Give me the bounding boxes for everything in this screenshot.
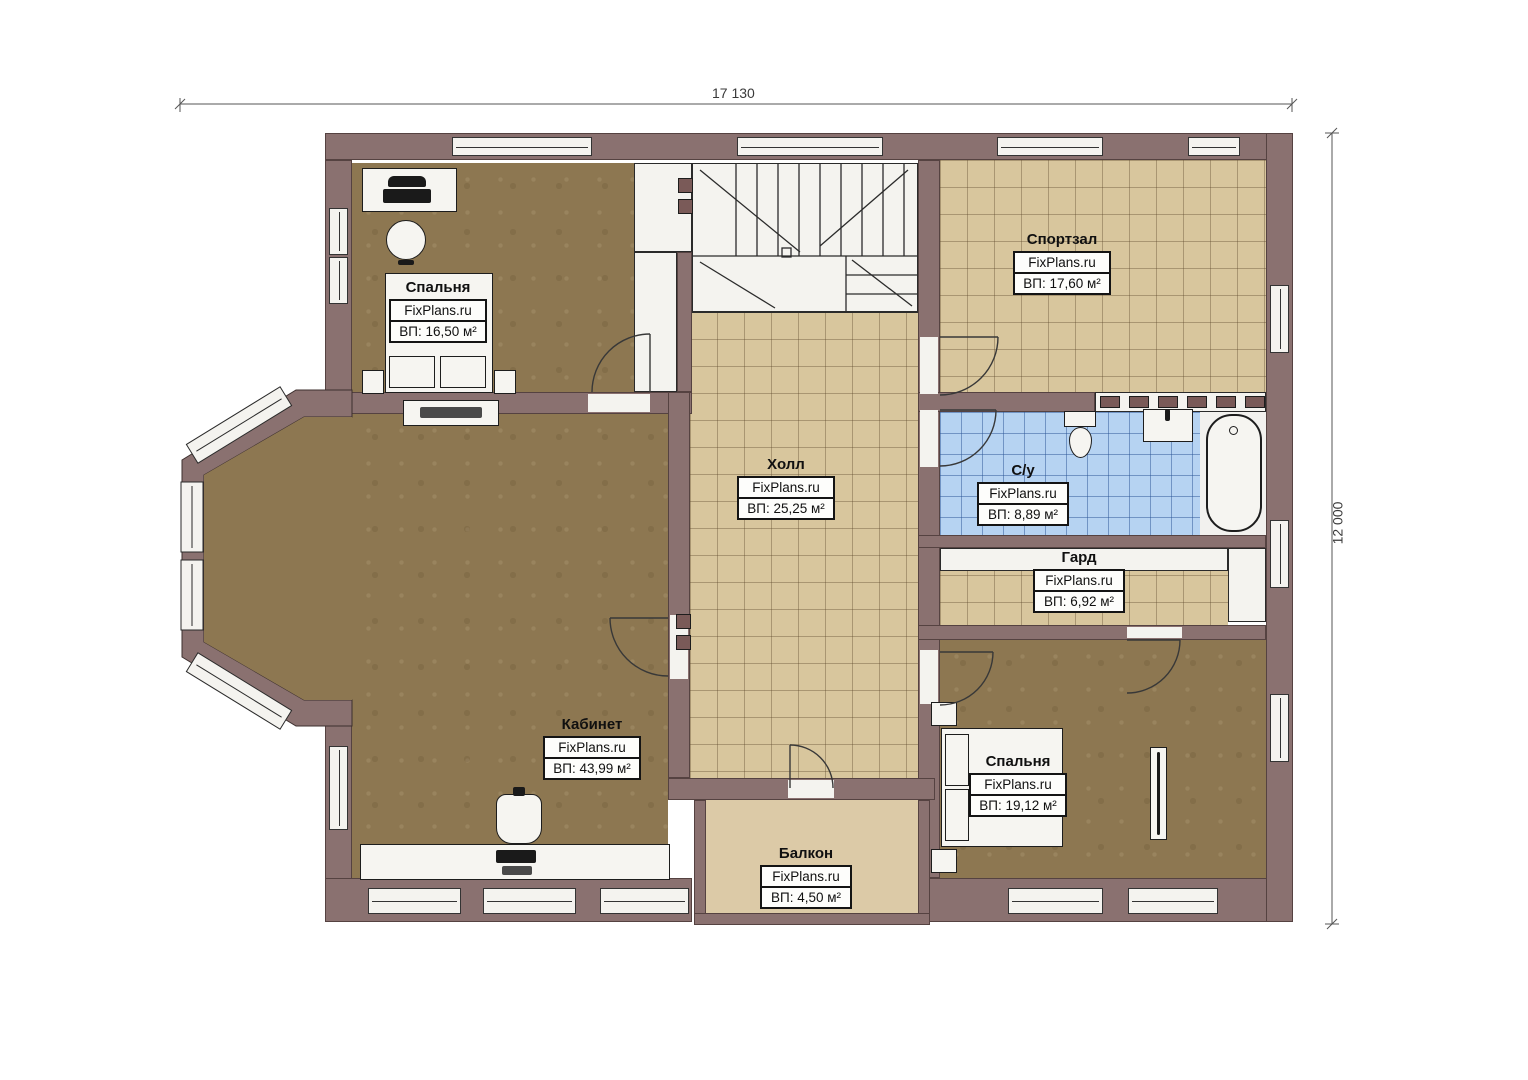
door-opening-balcony	[788, 780, 834, 798]
nightstand-bedroom1-left	[362, 370, 384, 394]
wall-gym-bathroom	[918, 392, 1095, 412]
watermark: FixPlans.ru	[545, 738, 639, 757]
window-right-gym	[1270, 285, 1289, 353]
mirror-line-icon	[1157, 752, 1160, 835]
room-name: Гард	[1033, 549, 1125, 566]
room-area: ВП: 16,50 м²	[391, 320, 485, 341]
nightstand-bedroom2-top	[931, 702, 957, 726]
chair-base-icon	[398, 260, 414, 265]
nightstand-bedroom1-right	[494, 370, 516, 394]
duct-square-4	[676, 635, 691, 650]
room-area: ВП: 6,92 м²	[1035, 590, 1123, 611]
laptop-icon	[388, 176, 426, 187]
nightstand-bedroom2-bottom	[931, 849, 957, 873]
room-info-box: FixPlans.ru ВП: 19,12 м²	[969, 773, 1067, 817]
window-top-bedroom1	[452, 137, 592, 156]
bay-window-top	[186, 387, 291, 463]
room-name: Спортзал	[1013, 231, 1111, 248]
toilet-tank	[1064, 411, 1096, 427]
stairwell	[692, 163, 918, 312]
tv-icon	[420, 407, 482, 418]
room-name: Кабинет	[543, 716, 641, 733]
room-name: Спальня	[389, 279, 487, 296]
duct-square-2	[678, 199, 693, 214]
office-chair	[496, 794, 542, 844]
bay-window	[181, 387, 352, 729]
room-label-bedroom2: Спальня FixPlans.ru ВП: 19,12 м²	[969, 753, 1067, 817]
balcony-wall-right	[918, 800, 930, 925]
room-info-box: FixPlans.ru ВП: 16,50 м²	[389, 299, 487, 343]
counter-tile-6	[1245, 396, 1265, 408]
room-label-bedroom1: Спальня FixPlans.ru ВП: 16,50 м²	[389, 279, 487, 343]
window-bottom-bedroom2-2	[1128, 888, 1218, 914]
counter-tile-5	[1216, 396, 1236, 408]
duct-square-3	[676, 614, 691, 629]
counter-tile-4	[1187, 396, 1207, 408]
counter-tile-2	[1129, 396, 1149, 408]
wardrobe-closet-right	[1228, 548, 1266, 622]
pillow-bedroom1-right	[440, 356, 486, 388]
pillow-bedroom2-bottom	[945, 789, 969, 841]
wall-bathroom-wardrobe	[918, 535, 1266, 548]
door-opening-bedroom2	[920, 650, 938, 704]
room-area: ВП: 8,89 м²	[979, 503, 1067, 524]
wall-hall-right	[918, 160, 940, 878]
pillow-bedroom1-left	[389, 356, 435, 388]
office-chair-bedroom1	[386, 220, 426, 260]
wall-closet-stair	[677, 252, 692, 392]
room-area: ВП: 25,25 м²	[739, 497, 833, 518]
keyboard-icon	[502, 866, 532, 875]
floor-plan-canvas: 17 130 12 000 Спальня FixPlans.ru ВП: 16…	[0, 0, 1528, 1080]
room-name: Холл	[737, 456, 835, 473]
office-chair-knob-icon	[513, 787, 525, 796]
watermark: FixPlans.ru	[979, 484, 1067, 503]
hall-floor	[690, 312, 918, 778]
balcony-wall-bottom	[694, 913, 930, 925]
wall-bottom-right	[918, 878, 1293, 922]
door-opening-gym	[920, 337, 938, 394]
sink-tap-icon	[1165, 409, 1170, 421]
room-label-balcony: Балкон FixPlans.ru ВП: 4,50 м²	[760, 845, 852, 909]
wall-hall-office	[668, 392, 690, 778]
room-label-office: Кабинет FixPlans.ru ВП: 43,99 м²	[543, 716, 641, 780]
window-right-wardrobe	[1270, 520, 1289, 588]
dimension-height-label: 12 000	[1329, 502, 1345, 545]
window-bottom-office-1	[368, 888, 461, 914]
window-left-3	[329, 746, 348, 830]
door-opening-bathroom	[920, 410, 938, 467]
watermark: FixPlans.ru	[1015, 253, 1109, 272]
room-label-wardrobe: Гард FixPlans.ru ВП: 6,92 м²	[1033, 549, 1125, 613]
window-top-gym-2	[1188, 137, 1240, 156]
room-label-gym: Спортзал FixPlans.ru ВП: 17,60 м²	[1013, 231, 1111, 295]
room-info-box: FixPlans.ru ВП: 17,60 м²	[1013, 251, 1111, 295]
window-bottom-bedroom2-1	[1008, 888, 1103, 914]
bay-window-bottom	[186, 653, 291, 729]
room-info-box: FixPlans.ru ВП: 4,50 м²	[760, 865, 852, 909]
monitor-icon	[496, 850, 536, 863]
watermark: FixPlans.ru	[739, 478, 833, 497]
room-area: ВП: 19,12 м²	[971, 794, 1065, 815]
counter-tile-3	[1158, 396, 1178, 408]
room-area: ВП: 17,60 м²	[1015, 272, 1109, 293]
door-opening-bedroom1	[588, 394, 650, 412]
duct-square-1	[678, 178, 693, 193]
laptop-base-icon	[383, 189, 431, 203]
dimension-width-label: 17 130	[712, 85, 755, 101]
room-info-box: FixPlans.ru ВП: 8,89 м²	[977, 482, 1069, 526]
door-opening-wardrobe	[1127, 627, 1182, 638]
window-left-1	[329, 208, 348, 255]
balcony-wall-left	[694, 800, 706, 925]
room-info-box: FixPlans.ru ВП: 25,25 м²	[737, 476, 835, 520]
wall-wardrobe-bedroom2	[918, 625, 1266, 640]
watermark: FixPlans.ru	[391, 301, 485, 320]
room-info-box: FixPlans.ru ВП: 43,99 м²	[543, 736, 641, 780]
bay-window-left-1	[181, 482, 203, 552]
room-area: ВП: 4,50 м²	[762, 886, 850, 907]
room-label-bathroom: С/у FixPlans.ru ВП: 8,89 м²	[977, 462, 1069, 526]
room-name: Спальня	[969, 753, 1067, 770]
room-name: Балкон	[760, 845, 852, 862]
closet-lower	[634, 252, 677, 392]
window-left-2	[329, 257, 348, 304]
bay-window-left-2	[181, 560, 203, 630]
watermark: FixPlans.ru	[1035, 571, 1123, 590]
counter-tile-1	[1100, 396, 1120, 408]
bathtub-drain-icon	[1229, 426, 1238, 435]
watermark: FixPlans.ru	[971, 775, 1065, 794]
room-info-box: FixPlans.ru ВП: 6,92 м²	[1033, 569, 1125, 613]
room-name: С/у	[977, 462, 1069, 479]
window-right-bedroom2	[1270, 694, 1289, 762]
watermark: FixPlans.ru	[762, 867, 850, 886]
window-top-gym-1	[997, 137, 1103, 156]
window-bottom-office-2	[483, 888, 576, 914]
window-bottom-office-3	[600, 888, 689, 914]
room-area: ВП: 43,99 м²	[545, 757, 639, 778]
window-top-stairs	[737, 137, 883, 156]
room-label-hall: Холл FixPlans.ru ВП: 25,25 м²	[737, 456, 835, 520]
pillow-bedroom2-top	[945, 734, 969, 786]
